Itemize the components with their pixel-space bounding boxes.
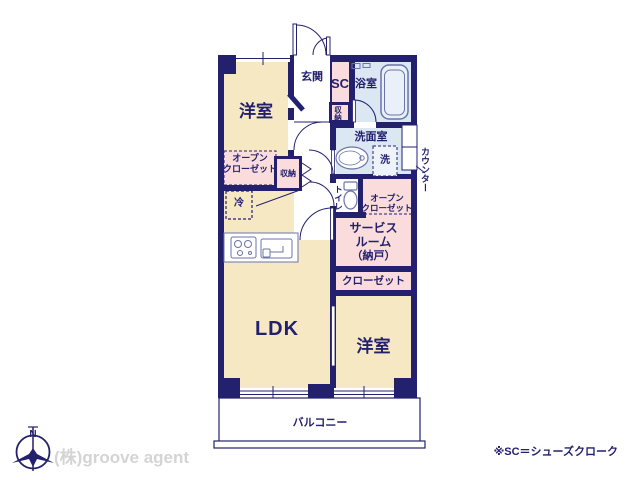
label-refrigerator: 冷 (226, 198, 252, 210)
sink-icon (336, 147, 368, 169)
label-bedroom-top: 洋室 (224, 102, 288, 122)
label-storage-entry: 収納 (334, 105, 342, 121)
room-ldk-lower (294, 240, 336, 392)
label-toilet: トイレ (334, 183, 343, 213)
label-bedroom-bottom: 洋室 (336, 337, 411, 357)
label-balcony: バルコニー (260, 417, 380, 430)
label-shoes-closet: SC (330, 77, 350, 92)
label-open-closet-left-2: クローゼット (222, 164, 278, 174)
label-service-room-2: ルーム (336, 236, 411, 250)
toilet-icon (344, 182, 357, 209)
label-storage-hall: 収納 (274, 169, 302, 178)
agency-logo: (株)groove agent (54, 448, 189, 468)
footnote: ※SC＝シューズクローク (458, 446, 618, 459)
label-washing-machine: 洗 (373, 155, 397, 167)
label-ldk: LDK (237, 318, 317, 341)
label-open-closet-left-1: オープン (222, 153, 278, 163)
label-washroom: 洗面室 (336, 131, 406, 144)
label-service-room-3: （納戸） (336, 250, 411, 263)
label-bathroom: 浴室 (350, 78, 382, 91)
room-hall (294, 62, 330, 240)
label-counter: カウンター (420, 136, 429, 202)
kitchen-counter (224, 233, 298, 262)
label-compass-north: N (26, 429, 40, 441)
label-entrance: 玄関 (294, 71, 330, 84)
label-service-room-1: サービス (336, 222, 411, 236)
label-closet: クローゼット (336, 275, 411, 287)
floor-plan-page: 洋室 玄関 SC 浴室 収納 洗面室 洗 カウンター オープン クローゼット 収… (0, 0, 640, 480)
label-open-closet-right-2: クローゼット (360, 204, 414, 214)
bathtub-icon (381, 65, 408, 119)
